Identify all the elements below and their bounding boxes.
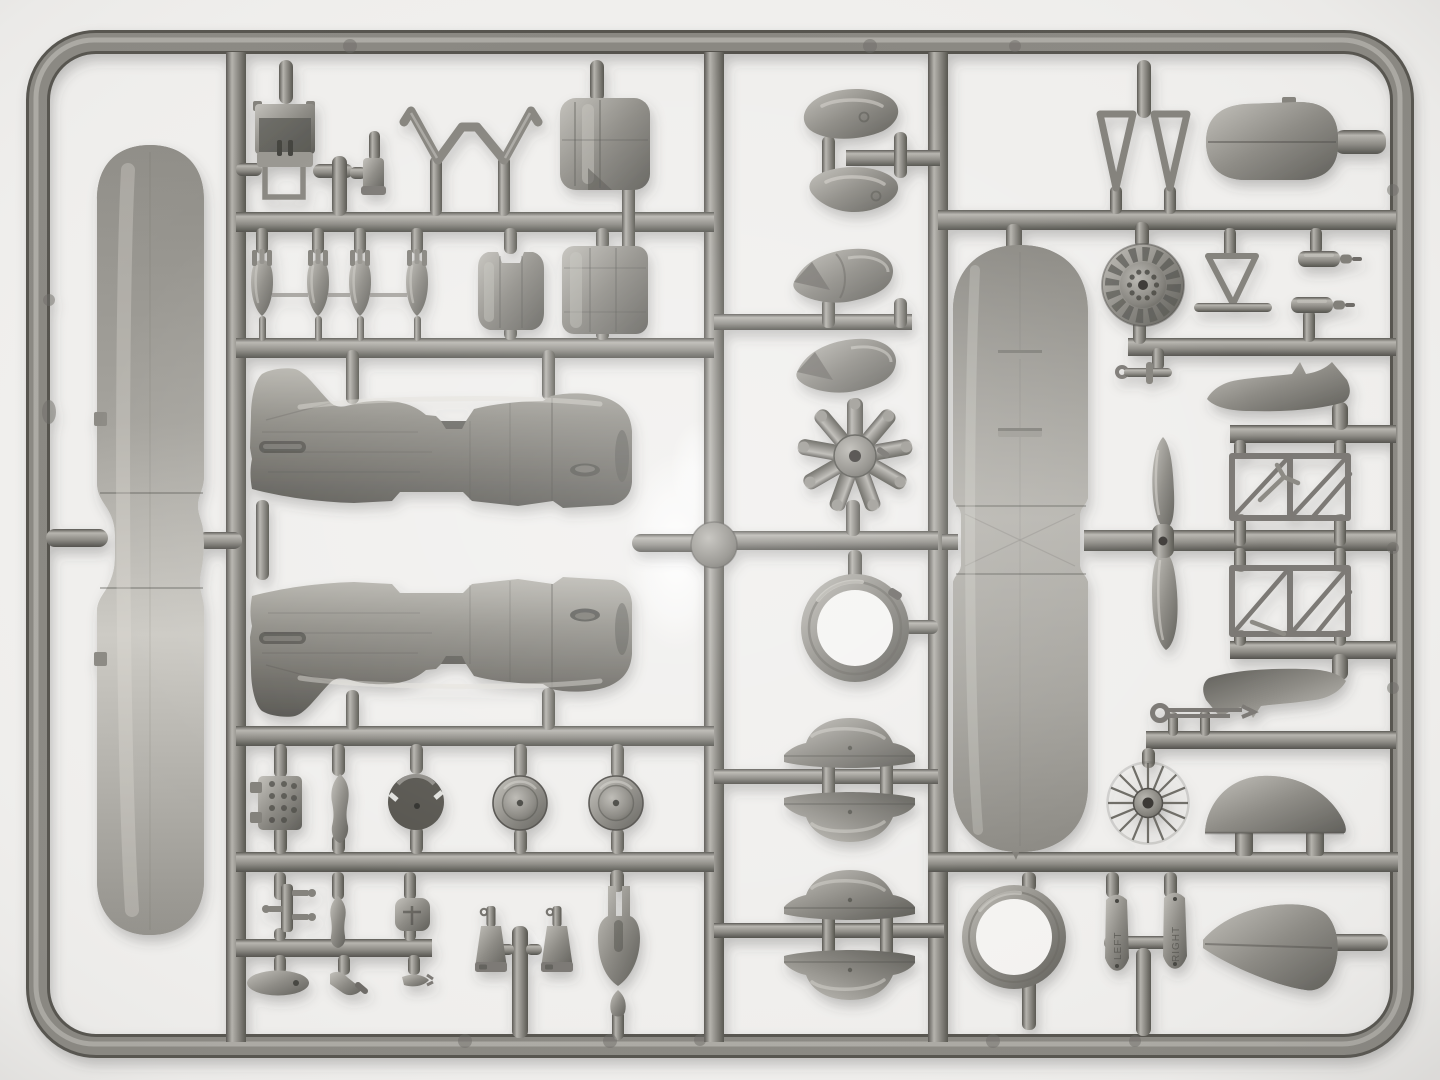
sprue-photo-svg: LEFT RIGHT xyxy=(0,0,1440,1080)
photo-vignette xyxy=(0,0,1440,1080)
sprue-photo: LEFT RIGHT xyxy=(0,0,1440,1080)
